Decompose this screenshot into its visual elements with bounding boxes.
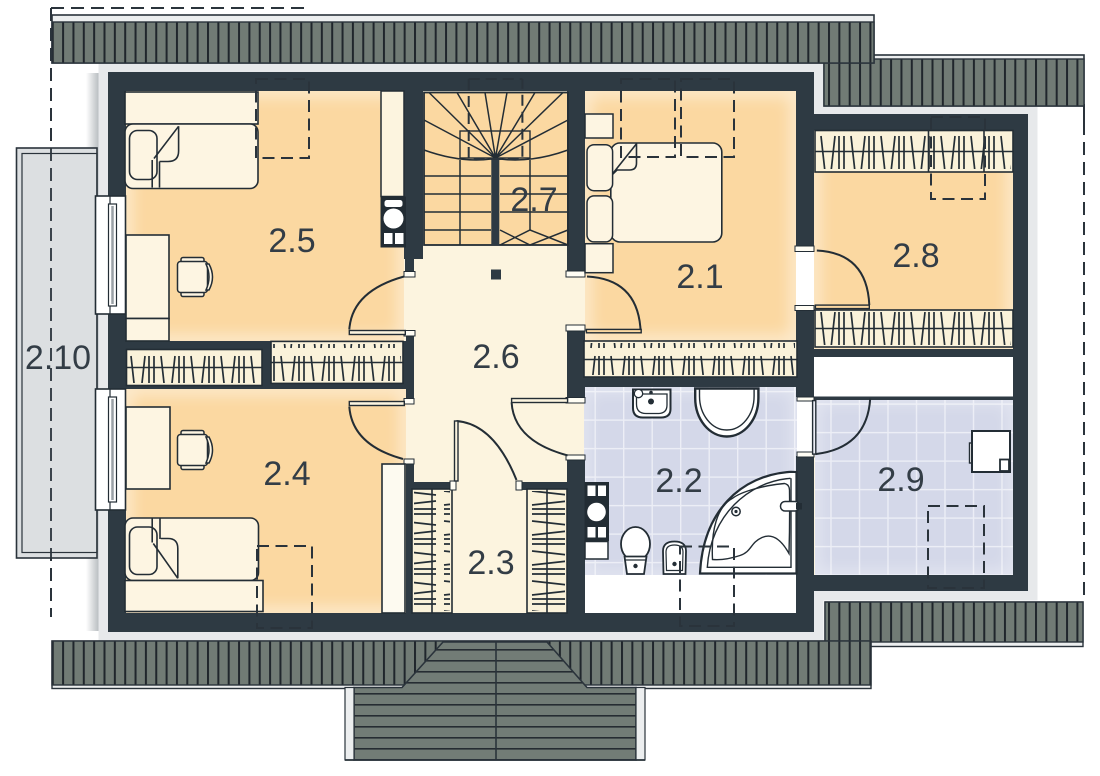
svg-text:2.1: 2.1	[676, 258, 723, 296]
svg-text:2.6: 2.6	[472, 338, 519, 376]
svg-text:2.7: 2.7	[510, 181, 557, 219]
svg-text:2.9: 2.9	[877, 461, 924, 499]
svg-text:2.2: 2.2	[655, 462, 702, 500]
svg-text:2.8: 2.8	[892, 237, 939, 275]
svg-text:2.5: 2.5	[268, 222, 315, 260]
svg-text:2.3: 2.3	[467, 544, 514, 582]
svg-text:2.4: 2.4	[263, 455, 310, 493]
svg-text:2.10: 2.10	[25, 339, 91, 377]
